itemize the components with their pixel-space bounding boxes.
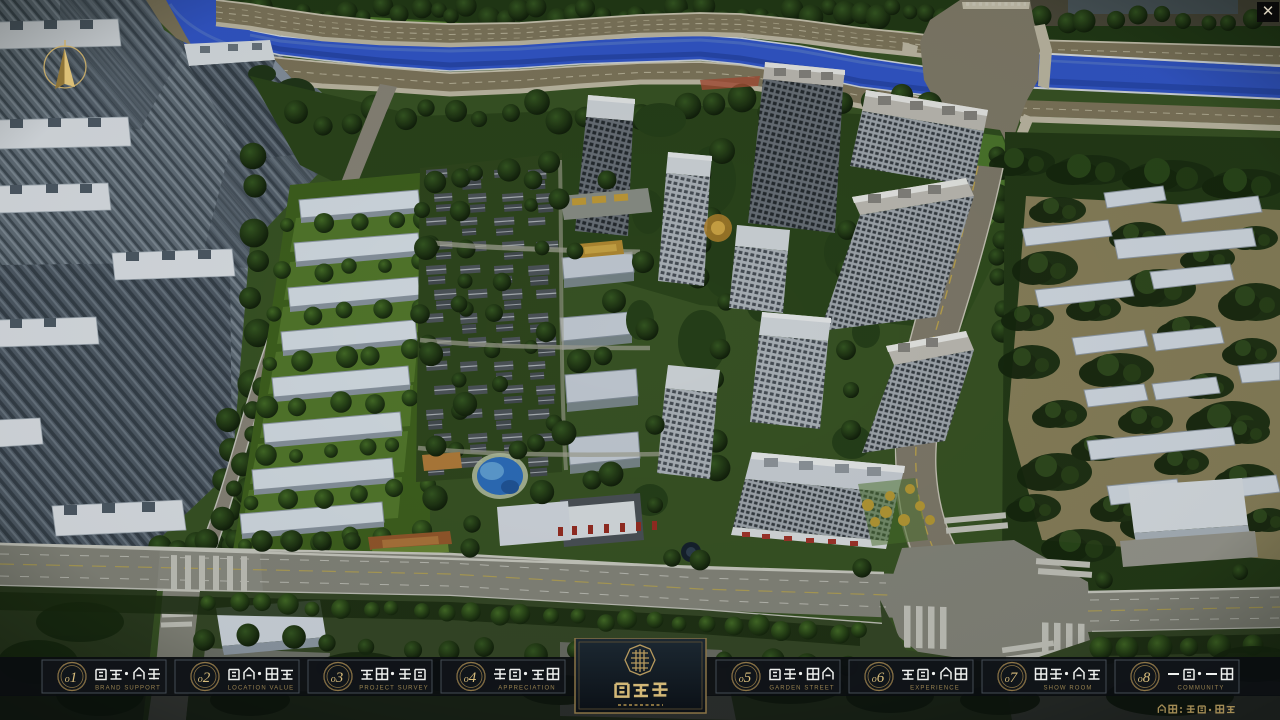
svg-text:GARDEN STREET: GARDEN STREET bbox=[769, 686, 834, 692]
svg-text:SHOW ROOM: SHOW ROOM bbox=[1044, 686, 1093, 692]
svg-text:BRAND SUPPORT: BRAND SUPPORT bbox=[95, 686, 161, 692]
svg-text:PROJECT SURVEY: PROJECT SURVEY bbox=[359, 686, 429, 692]
svg-text:LOCATION VALUE: LOCATION VALUE bbox=[228, 686, 295, 692]
svg-text:EXPERIENCE: EXPERIENCE bbox=[910, 686, 960, 692]
svg-text:APPRECIATION: APPRECIATION bbox=[498, 686, 555, 692]
svg-text:COMMUNITY: COMMUNITY bbox=[1178, 686, 1225, 692]
